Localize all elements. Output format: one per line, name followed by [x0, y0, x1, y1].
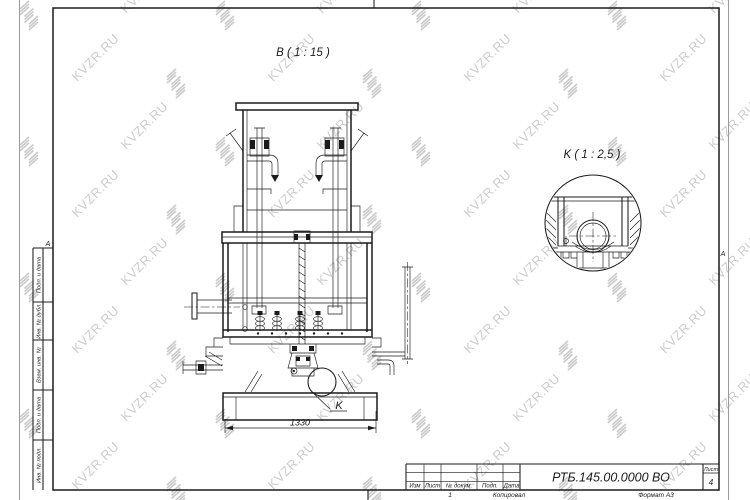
titleblock-col-podp: Подп.: [482, 484, 498, 490]
watermark-logo-icon: [608, 409, 626, 438]
watermark-text: KVZR.RU: [69, 439, 122, 492]
watermark-text: KVZR.RU: [706, 371, 750, 424]
watermark-text: KVZR.RU: [265, 439, 318, 492]
watermark-logo-icon: [20, 1, 38, 30]
watermark-logo-icon: [412, 273, 430, 302]
margin-stamp-column: Подп. и дата Инв. № дубл. Взам. инв. № П…: [33, 248, 53, 490]
doc-number: РТБ.145.00.0000 ВО: [552, 471, 670, 485]
footer-format: Формат А3: [638, 492, 674, 499]
watermark-text: KVZR.RU: [461, 167, 514, 220]
watermark-text: KVZR.RU: [265, 167, 318, 220]
watermark-logo-icon: [608, 273, 626, 302]
watermark-text: KVZR.RU: [510, 99, 563, 152]
footer-copied-by: Копировал: [493, 492, 526, 499]
watermark-text: KVZR.RU: [69, 303, 122, 356]
watermark-logo-icon: [216, 273, 234, 302]
watermark-logo-icon: [363, 477, 381, 500]
watermark-logo-icon: [412, 137, 430, 166]
watermark-logo-icon: [20, 273, 38, 302]
watermark-text: KVZR.RU: [706, 235, 750, 288]
dimension-1330: 1330: [290, 418, 310, 428]
watermark-text: KVZR.RU: [69, 167, 122, 220]
sheet-number: 4: [709, 478, 714, 487]
watermark-text: KVZR.RU: [461, 31, 514, 84]
watermark-text: KVZR.RU: [118, 99, 171, 152]
drawing-canvas: KVZR.RUKVZR.RUKVZR.RUKVZR.RUKVZR.RUKVZR.…: [0, 0, 750, 500]
watermark-text: KVZR.RU: [461, 303, 514, 356]
watermark-text: KVZR.RU: [118, 371, 171, 424]
detail-view-label: K ( 1 : 2,5 ): [564, 149, 621, 161]
drawing-sheet: KVZR.RUKVZR.RUKVZR.RUKVZR.RUKVZR.RUKVZR.…: [0, 0, 750, 500]
watermark-logo-icon: [559, 69, 577, 98]
watermark-text: KVZR.RU: [69, 31, 122, 84]
detail-view-k: [545, 175, 641, 271]
watermark-layer: KVZR.RUKVZR.RUKVZR.RUKVZR.RUKVZR.RUKVZR.…: [20, 0, 750, 500]
watermark-text: KVZR.RU: [118, 235, 171, 288]
watermark-text: KVZR.RU: [657, 31, 710, 84]
watermark-logo-icon: [20, 137, 38, 166]
watermark-logo-icon: [363, 69, 381, 98]
margin-label-3: Взам. инв. №: [37, 347, 43, 383]
zone-marker-left: A: [45, 241, 51, 248]
watermark-text: KVZR.RU: [510, 235, 563, 288]
margin-label-1: Подп. и дата: [37, 256, 43, 293]
titleblock-col-data: Дата: [503, 484, 520, 490]
watermark-logo-icon: [559, 341, 577, 370]
watermark-logo-icon: [20, 409, 38, 438]
watermark-text: KVZR.RU: [657, 167, 710, 220]
watermark-text: KVZR.RU: [510, 371, 563, 424]
watermark-logo-icon: [412, 1, 430, 30]
watermark-logo-icon: [608, 1, 626, 30]
margin-label-2: Инв. № дубл.: [37, 303, 43, 339]
titleblock-col-izm: Изм: [409, 484, 420, 490]
watermark-logo-icon: [559, 205, 577, 234]
watermark-logo-icon: [412, 409, 430, 438]
watermark-logo-icon: [167, 205, 185, 234]
view-label: B ( 1 : 15 ): [276, 47, 330, 59]
watermark-logo-icon: [167, 341, 185, 370]
watermark-text: KVZR.RU: [706, 99, 750, 152]
titleblock-col-docnum: № докум.: [446, 483, 472, 490]
watermark-text: KVZR.RU: [314, 371, 367, 424]
sheet-edges: [20, 0, 729, 500]
watermark-logo-icon: [167, 477, 185, 500]
watermark-logo-icon: [216, 137, 234, 166]
margin-label-5: Инв. № подл.: [37, 447, 43, 483]
watermark-text: KVZR.RU: [657, 303, 710, 356]
titleblock-col-list: Лист: [424, 484, 440, 490]
footer-page-number: 1: [448, 492, 452, 499]
zone-marker-right: A: [720, 251, 726, 258]
margin-label-4: Подп. и дата: [37, 396, 43, 433]
sheet-cell-label: Лист: [703, 467, 719, 473]
watermark-logo-icon: [216, 1, 234, 30]
detail-callout-k: K: [335, 400, 343, 412]
watermark-logo-icon: [363, 341, 381, 370]
watermark-logo-icon: [363, 205, 381, 234]
main-view-drawing: [183, 103, 413, 433]
watermark-logo-icon: [167, 69, 185, 98]
drum-circle: [308, 368, 336, 396]
